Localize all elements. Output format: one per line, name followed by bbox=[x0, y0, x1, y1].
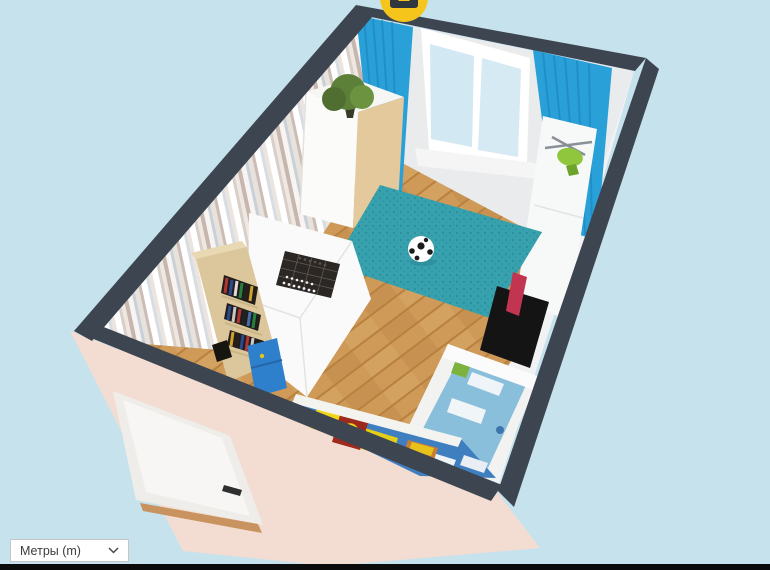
ball-patch-3 bbox=[427, 249, 433, 255]
plant-foliage-2 bbox=[322, 87, 346, 111]
planner-3d-view: Метры (m) bbox=[0, 0, 770, 570]
drawer-knob bbox=[260, 354, 264, 358]
window-glass-left bbox=[430, 44, 474, 147]
chevron-down-icon bbox=[108, 547, 119, 554]
room-3d-scene bbox=[0, 0, 770, 570]
camera-icon-slit bbox=[398, 0, 410, 1]
ball-patch-4 bbox=[415, 256, 420, 261]
bottom-bar bbox=[0, 564, 770, 570]
window-glass-right bbox=[478, 58, 521, 157]
ball-patch-5 bbox=[424, 238, 428, 242]
ball-patch-2 bbox=[409, 248, 415, 254]
units-dropdown[interactable]: Метры (m) bbox=[10, 539, 129, 562]
camera-icon bbox=[390, 0, 418, 8]
ball-patch bbox=[417, 242, 424, 249]
units-dropdown-value: Метры (m) bbox=[20, 544, 81, 558]
plant-foliage-3 bbox=[350, 85, 374, 109]
bedding-dot bbox=[496, 426, 504, 434]
